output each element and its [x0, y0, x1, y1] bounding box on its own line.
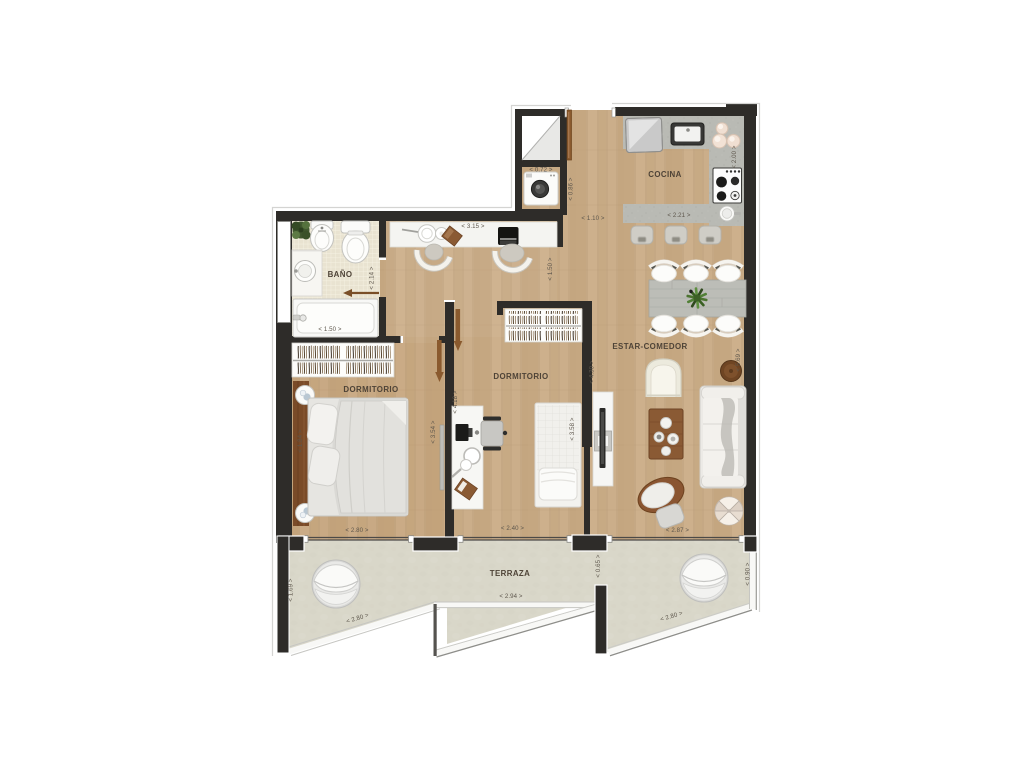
svg-text:< 2.40 >: < 2.40 > — [501, 525, 525, 532]
svg-text:< 2.21 >: < 2.21 > — [667, 212, 691, 219]
svg-text:< 0.86 >: < 0.86 > — [568, 177, 575, 201]
svg-text:< 1.69 >: < 1.69 > — [288, 578, 295, 602]
svg-text:COCINA: COCINA — [648, 170, 682, 179]
svg-text:TERRAZA: TERRAZA — [490, 569, 531, 578]
svg-text:< 0.72 >: < 0.72 > — [529, 167, 553, 174]
svg-text:ESTAR-COMEDOR: ESTAR-COMEDOR — [612, 342, 687, 351]
svg-text:< 1.10 >: < 1.10 > — [581, 215, 605, 222]
svg-text:< 2.14 >: < 2.14 > — [369, 266, 376, 290]
svg-text:< 0.65 >: < 0.65 > — [595, 554, 602, 578]
svg-text:< 3.54 >: < 3.54 > — [430, 420, 437, 444]
svg-text:< 4.18 >: < 4.18 > — [452, 390, 459, 414]
svg-text:< 0.90 >: < 0.90 > — [745, 562, 752, 586]
svg-text:< 1.50 >: < 1.50 > — [547, 257, 554, 281]
svg-text:< 1.84 >: < 1.84 > — [297, 429, 304, 453]
svg-text:DORMITORIO: DORMITORIO — [493, 372, 548, 381]
svg-text:< 2.87 >: < 2.87 > — [666, 527, 690, 534]
svg-text:< 4.30 >: < 4.30 > — [589, 360, 596, 384]
svg-text:DORMITORIO: DORMITORIO — [343, 385, 398, 394]
svg-text:< 3.58 >: < 3.58 > — [569, 417, 576, 441]
svg-text:< 2.00 >: < 2.00 > — [731, 145, 738, 169]
svg-text:< 3.15 >: < 3.15 > — [461, 223, 485, 230]
svg-text:< 2.94 >: < 2.94 > — [499, 593, 523, 600]
svg-text:< 1.50 >: < 1.50 > — [318, 326, 342, 333]
svg-text:< 2.80 >: < 2.80 > — [345, 527, 369, 534]
svg-text:BAÑO: BAÑO — [328, 270, 353, 279]
svg-text:< 5.69 >: < 5.69 > — [735, 348, 742, 372]
